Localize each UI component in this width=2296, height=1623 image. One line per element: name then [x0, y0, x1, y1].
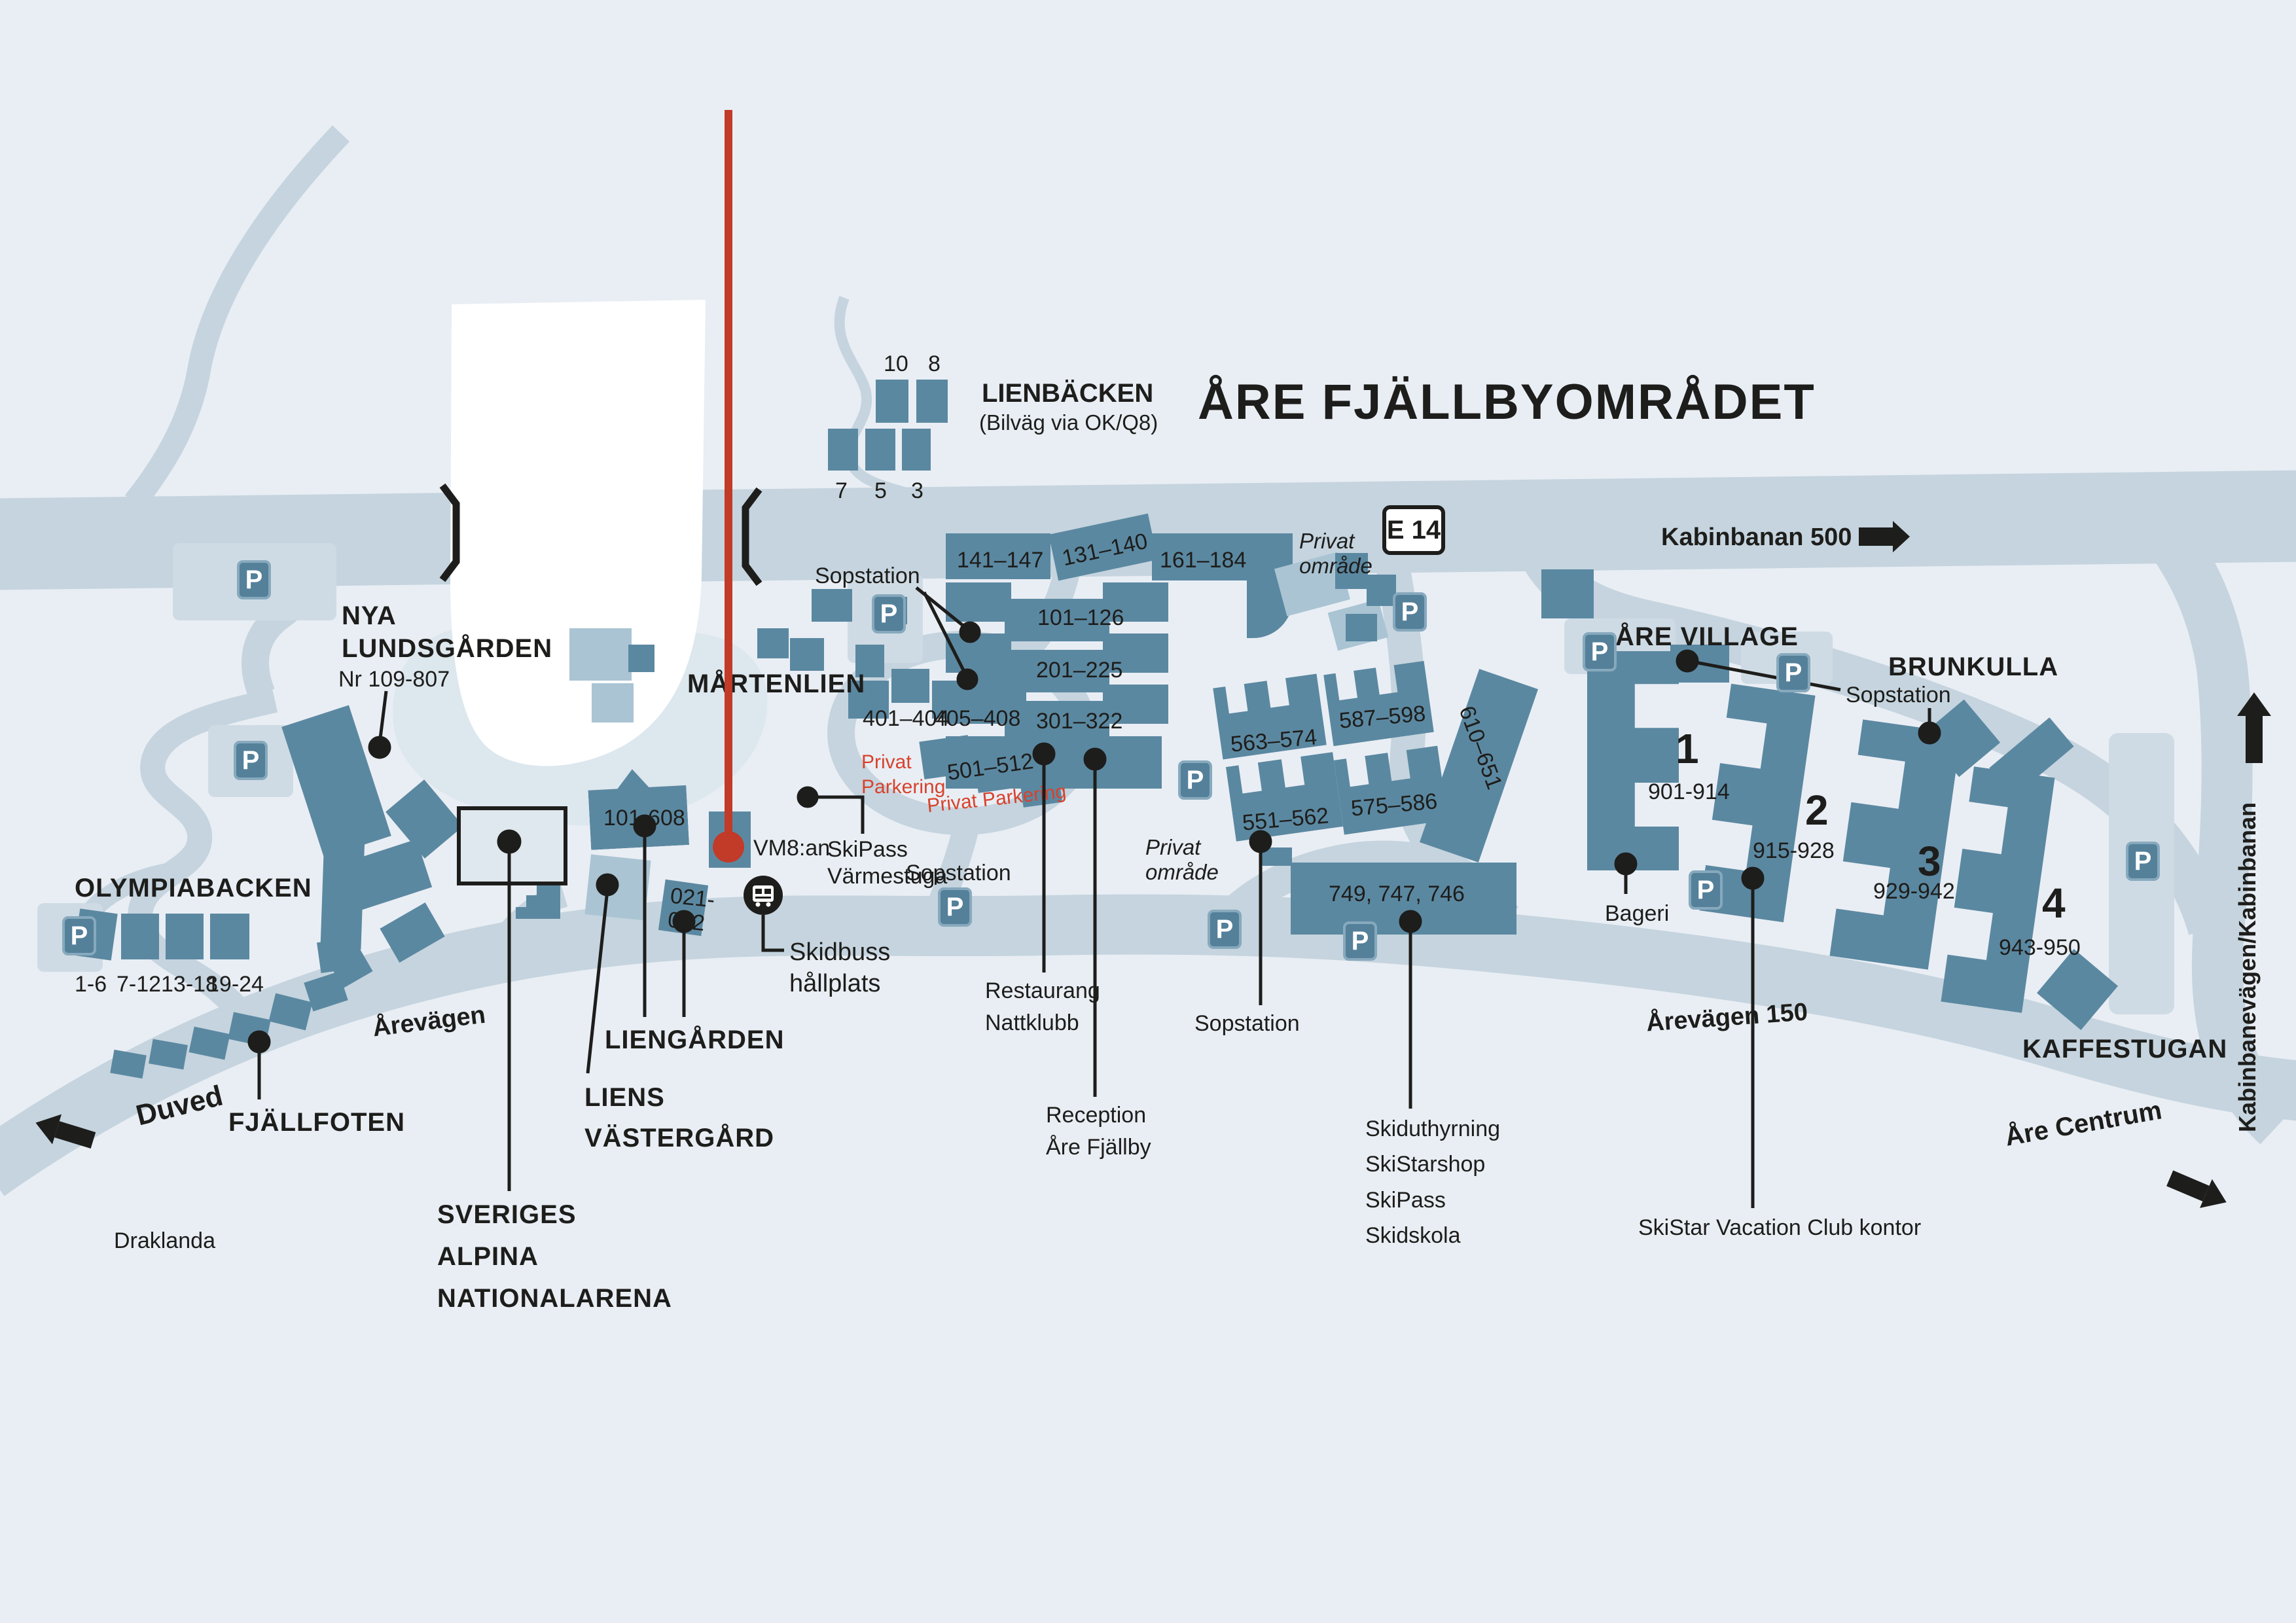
parking-icon: P: [1776, 653, 1810, 692]
parking-icon: P: [1583, 632, 1617, 671]
bus-icon: [744, 876, 783, 915]
parking-icon: P: [1178, 760, 1212, 800]
parking-icon: P: [2126, 842, 2160, 881]
kabinbanevagen-up-arrow: [2237, 692, 2271, 763]
parking-icon: P: [237, 560, 271, 599]
duved-arrow: [31, 1108, 98, 1156]
parking-icon: P: [1689, 870, 1723, 910]
lift-base-dot: [713, 831, 744, 863]
parking-icon: P: [1393, 592, 1427, 632]
parking-icon: P: [62, 916, 96, 955]
parking-icon: P: [1343, 921, 1377, 961]
kabinbanan-arrow: [1859, 521, 1910, 552]
parking-icon: P: [1208, 910, 1242, 949]
parking-icon: P: [234, 741, 268, 780]
leader-lines: [249, 588, 1939, 1208]
parking-icon: P: [938, 887, 972, 927]
annotation-layer: [0, 0, 2296, 1623]
resort-map: ÅRE FJÄLLBYOMRÅDET LIENBÄCKEN (Bilväg vi…: [0, 0, 2296, 1623]
parking-icon: P: [872, 594, 906, 633]
are-centrum-arrow: [2164, 1164, 2233, 1217]
